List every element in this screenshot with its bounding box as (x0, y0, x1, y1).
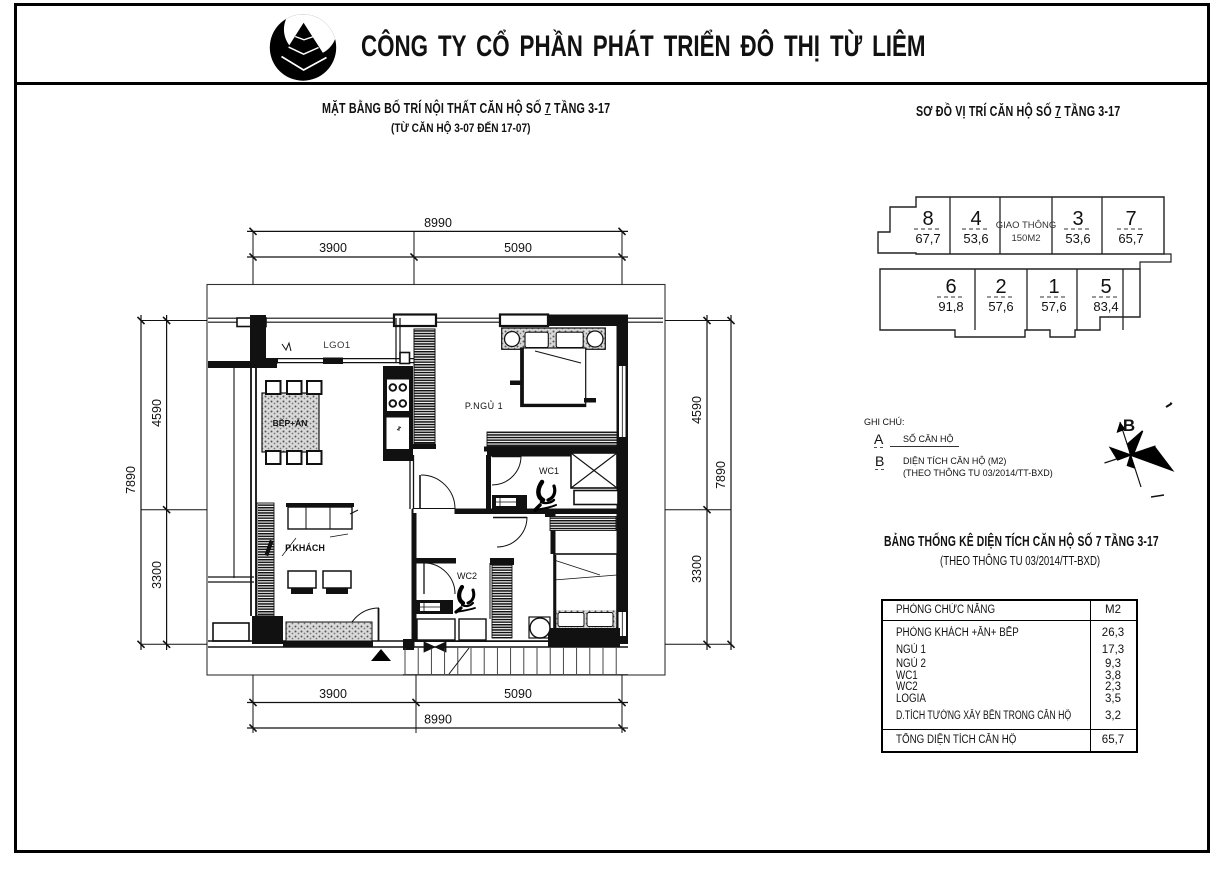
svg-text:7890: 7890 (714, 461, 728, 489)
svg-text:GIAO THÔNG: GIAO THÔNG (996, 220, 1057, 231)
svg-text:8990: 8990 (424, 216, 452, 230)
svg-text:LGO1: LGO1 (323, 340, 350, 351)
svg-text:150M2: 150M2 (1011, 233, 1040, 244)
svg-text:57,6: 57,6 (988, 299, 1013, 314)
svg-text:5: 5 (1100, 276, 1111, 298)
svg-text:WC2: WC2 (457, 571, 477, 581)
svg-text:BẾP+ĂN: BẾP+ĂN (273, 418, 308, 428)
svg-text:65,7: 65,7 (1118, 231, 1143, 246)
svg-text:91,8: 91,8 (938, 299, 963, 314)
svg-text:3900: 3900 (319, 241, 347, 255)
svg-text:3300: 3300 (150, 561, 164, 589)
svg-text:53,6: 53,6 (963, 231, 988, 246)
svg-text:7890: 7890 (124, 466, 138, 494)
svg-text:5090: 5090 (504, 241, 532, 255)
svg-text:1: 1 (1048, 276, 1059, 298)
svg-text:3900: 3900 (319, 687, 347, 701)
svg-text:B: B (1123, 416, 1135, 435)
svg-text:3300: 3300 (690, 555, 704, 583)
svg-text:4590: 4590 (690, 396, 704, 424)
svg-text:8990: 8990 (424, 713, 452, 727)
svg-text:53,6: 53,6 (1065, 231, 1090, 246)
svg-text:3: 3 (1072, 208, 1083, 230)
svg-text:2: 2 (995, 276, 1006, 298)
svg-text:P.NGỦ 1: P.NGỦ 1 (465, 400, 503, 411)
svg-text:57,6: 57,6 (1041, 299, 1066, 314)
svg-text:WC1: WC1 (539, 466, 559, 476)
svg-text:5090: 5090 (504, 687, 532, 701)
svg-text:67,7: 67,7 (915, 231, 940, 246)
svg-text:4590: 4590 (150, 399, 164, 427)
svg-text:7: 7 (1125, 208, 1136, 230)
svg-text:83,4: 83,4 (1093, 299, 1118, 314)
svg-text:6: 6 (945, 276, 956, 298)
svg-text:4: 4 (970, 208, 981, 230)
svg-text:8: 8 (922, 208, 933, 230)
